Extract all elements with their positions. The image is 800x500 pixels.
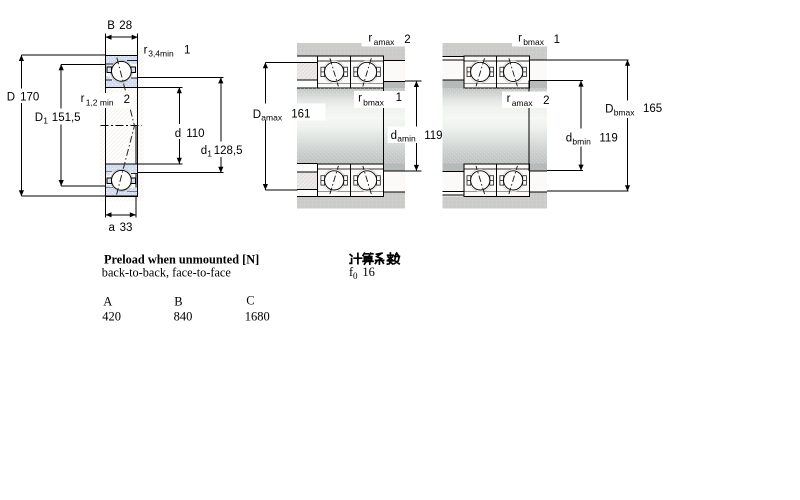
svg-text:1: 1	[396, 92, 402, 104]
svg-text:C: C	[246, 294, 254, 308]
svg-text:bmin: bmin	[572, 137, 591, 147]
svg-text:2: 2	[124, 94, 130, 106]
svg-text:r: r	[507, 93, 511, 105]
svg-text:Preload when unmounted [N]: Preload when unmounted [N]	[104, 252, 259, 266]
svg-text:16: 16	[362, 265, 375, 279]
svg-text:bmax: bmax	[363, 98, 385, 108]
svg-text:110: 110	[186, 128, 204, 140]
svg-text:r: r	[368, 33, 372, 45]
svg-text:1680: 1680	[245, 310, 270, 324]
svg-text:back-to-back, face-to-face: back-to-back, face-to-face	[102, 266, 232, 280]
svg-text:amax: amax	[261, 113, 283, 123]
svg-text:420: 420	[102, 310, 121, 324]
svg-text:28: 28	[119, 20, 132, 32]
svg-text:B: B	[174, 294, 182, 308]
svg-text:r: r	[518, 33, 522, 45]
svg-text:A: A	[103, 294, 112, 308]
svg-text:amax: amax	[374, 37, 396, 47]
svg-text:2: 2	[543, 95, 549, 107]
svg-text:bmax: bmax	[614, 108, 636, 118]
svg-text:840: 840	[174, 310, 193, 324]
svg-text:1: 1	[184, 45, 190, 57]
svg-text:a: a	[109, 222, 116, 234]
svg-text:165: 165	[643, 103, 662, 115]
svg-text:33: 33	[120, 222, 133, 234]
svg-text:128,5: 128,5	[214, 145, 243, 157]
svg-text:2: 2	[404, 34, 410, 46]
svg-text:3,4min: 3,4min	[148, 49, 174, 59]
svg-text:D: D	[605, 103, 613, 115]
svg-text:0: 0	[353, 271, 358, 281]
svg-text:1: 1	[43, 116, 48, 126]
svg-text:bmax: bmax	[523, 37, 545, 47]
svg-text:B: B	[107, 20, 115, 32]
svg-text:d: d	[175, 128, 181, 140]
svg-text:r: r	[358, 93, 362, 105]
svg-text:d: d	[201, 145, 207, 157]
svg-text:D: D	[7, 91, 15, 103]
svg-text:r: r	[81, 93, 85, 105]
svg-text:D: D	[35, 112, 43, 124]
svg-text:d: d	[566, 132, 572, 144]
svg-text:1,2 min: 1,2 min	[86, 98, 114, 108]
svg-text:d: d	[391, 130, 397, 142]
svg-text:151,5: 151,5	[52, 112, 81, 124]
svg-text:119: 119	[599, 132, 617, 144]
svg-text:161: 161	[291, 109, 310, 121]
svg-text:amin: amin	[397, 134, 416, 144]
svg-text:D: D	[253, 109, 261, 121]
svg-text:1: 1	[554, 34, 560, 46]
svg-text:amax: amax	[512, 98, 534, 108]
svg-text:119: 119	[424, 130, 442, 142]
svg-text:1: 1	[207, 149, 212, 159]
svg-text:r: r	[144, 45, 148, 57]
svg-text:170: 170	[20, 91, 39, 103]
